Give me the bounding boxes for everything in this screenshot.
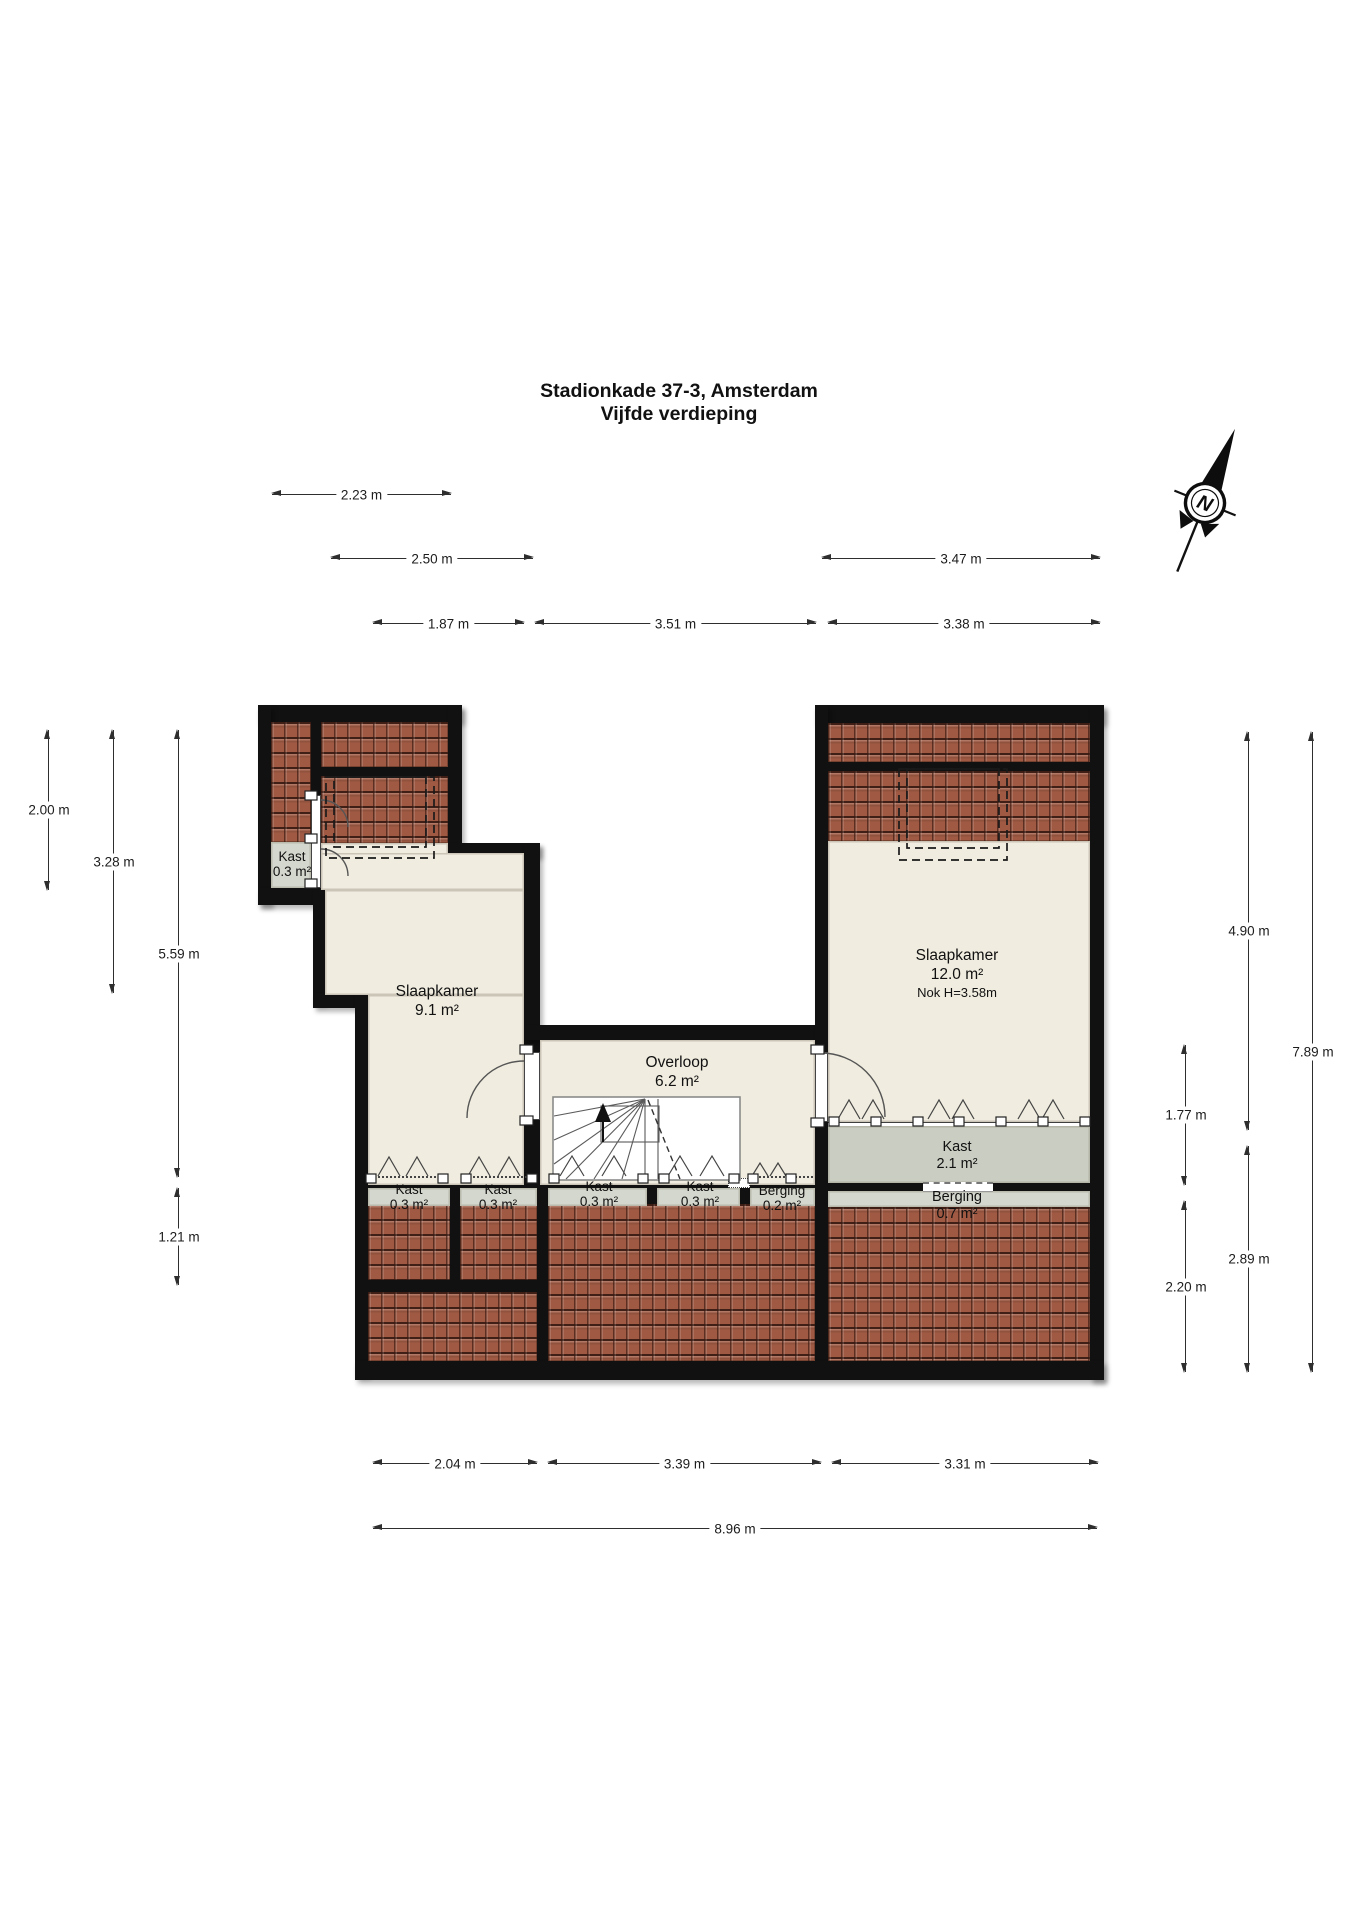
room-floor-slaapkamer-left [325, 890, 524, 995]
roof-tiles [368, 1292, 537, 1361]
dimension-line: 2.04 m [373, 1463, 537, 1464]
dimension-line: 1.21 m [178, 1188, 179, 1285]
dimension-line: 3.38 m [828, 623, 1100, 624]
wall-segment [828, 762, 1090, 771]
wall-segment [258, 705, 462, 722]
dimension-line: 1.77 m [1185, 1045, 1186, 1185]
wall-segment [815, 705, 1104, 723]
dimension-line: 3.51 m [535, 623, 816, 624]
dimension-line: 1.87 m [373, 623, 524, 624]
closet-front-line [752, 1176, 813, 1178]
north-needle [1200, 425, 1245, 494]
door-jamb-left [524, 1052, 540, 1120]
closet-front-line [462, 1176, 535, 1178]
wall-segment [450, 1177, 460, 1280]
dimension-line: 3.39 m [548, 1463, 821, 1464]
dimension-line: 2.20 m [1185, 1201, 1186, 1372]
compass-icon: N [1147, 416, 1266, 584]
door-jamb-right [815, 1052, 828, 1122]
roof-tiles [321, 722, 448, 767]
dimension-line: 2.50 m [331, 558, 533, 559]
dimension-line: 3.47 m [822, 558, 1100, 559]
wall-segment [524, 1025, 828, 1040]
wall-segment [321, 767, 448, 776]
compass-tail [1177, 520, 1198, 572]
wall-segment [524, 1120, 540, 1177]
page-title: Stadionkade 37-3, Amsterdam Vijfde verdi… [0, 380, 1358, 426]
dimension-line: 3.28 m [113, 730, 114, 993]
room-floor-slaapkamer-left [368, 995, 524, 1185]
wall-segment [258, 705, 271, 905]
north-label: N [1194, 491, 1216, 517]
roof-tiles [271, 722, 311, 842]
closet-front-line [550, 1176, 645, 1178]
dimension-line: 4.90 m [1248, 732, 1249, 1130]
roof-tiles [548, 1204, 815, 1361]
room-label-kast-d: Kast 0.3 m² [681, 1180, 719, 1209]
dimension-line: 2.00 m [48, 730, 49, 890]
closet-front-line [659, 1176, 738, 1178]
room-label-kast-attic: Kast 0.3 m² [273, 850, 311, 879]
wall-segment [355, 1361, 1104, 1380]
floorplan-page: Stadionkade 37-3, Amsterdam Vijfde verdi… [0, 0, 1358, 1920]
wall-segment [448, 705, 462, 853]
wall-segment [524, 843, 540, 1052]
room-label-berging-large: Berging 0.7 m² [932, 1189, 982, 1223]
roof-tiles [828, 723, 1090, 762]
roof-tiles [828, 771, 1090, 841]
room-label-overloop: Overloop 6.2 m² [646, 1053, 709, 1091]
roof-tiles [321, 776, 448, 843]
wall-segment [1090, 705, 1104, 1380]
room-label-slaapkamer-left: Slaapkamer 9.1 m² [396, 982, 479, 1020]
dimension-line: 8.96 m [373, 1528, 1097, 1529]
roof-tiles [368, 1204, 450, 1280]
wall-segment [311, 722, 321, 798]
dimension-line: 7.89 m [1312, 732, 1313, 1372]
dimension-line: 3.31 m [832, 1463, 1098, 1464]
wall-segment [313, 888, 325, 1003]
wall-opening-small [728, 1178, 750, 1188]
roof-tiles [460, 1204, 537, 1280]
room-label-kast-a: Kast 0.3 m² [390, 1183, 428, 1212]
wall-segment [537, 1177, 548, 1361]
closet-front-line [371, 1176, 448, 1178]
room-label-kast-b: Kast 0.3 m² [479, 1183, 517, 1212]
room-floor-slaapkamer-left [321, 853, 524, 890]
room-note-nok-height: Nok H=3.58m [916, 984, 999, 1001]
wall-segment [815, 1122, 828, 1361]
room-label-kast-c: Kast 0.3 m² [580, 1180, 618, 1209]
title-floor: Vijfde verdieping [0, 403, 1358, 426]
dimension-line: 5.59 m [178, 730, 179, 1177]
dimension-line: 2.23 m [272, 494, 451, 495]
closet-door-jamb [311, 795, 321, 888]
title-address: Stadionkade 37-3, Amsterdam [0, 380, 1358, 403]
room-label-kast-large: Kast 2.1 m² [936, 1139, 977, 1173]
roof-tiles [828, 1207, 1090, 1361]
room-label-slaapkamer-right: Slaapkamer 12.0 m² Nok H=3.58m [916, 946, 999, 1001]
wall-segment [355, 1280, 537, 1292]
dimension-line: 2.89 m [1248, 1146, 1249, 1372]
wall-segment [815, 705, 828, 1052]
wall-segment [258, 888, 321, 905]
room-label-berging-small: Berging 0.2 m² [759, 1184, 806, 1213]
